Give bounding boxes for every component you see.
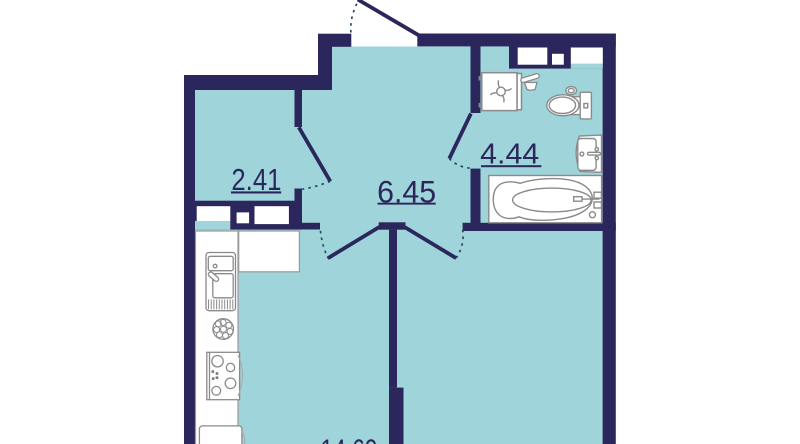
svg-text:14.69: 14.69 xyxy=(321,434,378,444)
